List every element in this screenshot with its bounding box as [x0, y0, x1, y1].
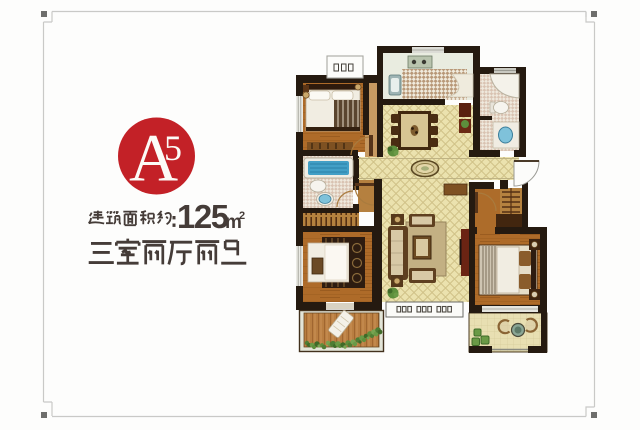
svg-text:2: 2 — [239, 210, 245, 222]
svg-text:5: 5 — [164, 128, 182, 168]
svg-text:125: 125 — [177, 198, 229, 235]
